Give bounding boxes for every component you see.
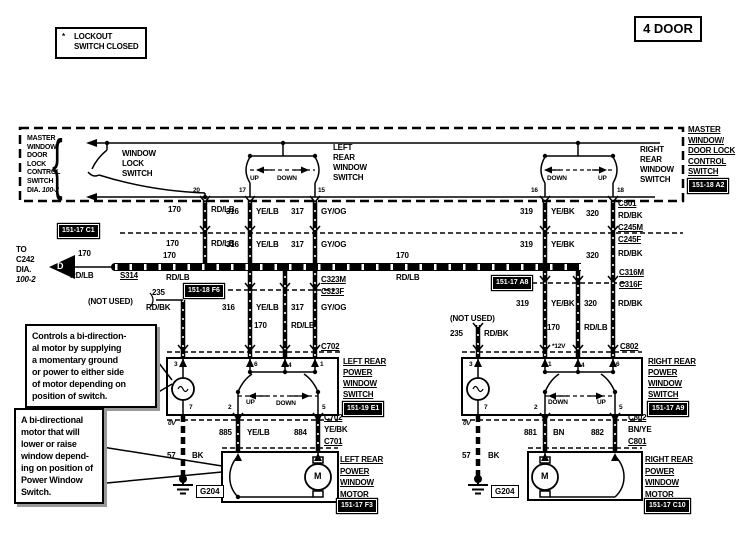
wire-gauge: 316 (226, 207, 239, 216)
ground-label: G204 (491, 485, 519, 498)
down-label: DOWN (276, 400, 296, 407)
label-line: SWITCH (688, 167, 735, 178)
label-line: WINDOW/ (688, 136, 735, 147)
label-line: POWER (648, 367, 696, 378)
label-line: REAR (640, 155, 674, 165)
splice-label: S314 (120, 271, 138, 280)
lockout-note-line1: LOCKOUT (74, 32, 112, 41)
wire-gauge: 319 (520, 240, 533, 249)
wire-color: YE/LB (256, 303, 279, 312)
ground-symbol-right (468, 476, 488, 494)
pin-label: 1 (548, 361, 551, 368)
note-line: position of switch. (32, 390, 150, 402)
grid-ref-badge: 151-17 A8 (492, 276, 532, 290)
wire-color: BN/YE (628, 425, 651, 434)
wire-color: GY/OG (321, 207, 346, 216)
label-line: DIA. (16, 265, 35, 275)
label-line: POWER (645, 466, 693, 478)
label-line: WINDOW (648, 378, 696, 389)
wire-color: YE/BK (551, 207, 574, 216)
voltage-label: *12V (552, 343, 565, 350)
label-line: WINDOW (340, 477, 383, 489)
pin-label: 3 (469, 361, 472, 368)
label-line: SWITCH (648, 389, 696, 400)
label-line: SWITCH (333, 173, 367, 183)
wire-gauge: 235 (450, 329, 463, 338)
label-line: POWER (340, 466, 383, 478)
right-motor-label: RIGHT REAR POWER WINDOW MOTOR (645, 454, 693, 500)
label-line: LEFT REAR (340, 454, 383, 466)
pin-label: 18 (617, 187, 624, 194)
wiring-diagram-page: * LOCKOUT SWITCH CLOSED 4 DOOR MASTER WI… (0, 0, 751, 537)
pin-label: 2 (228, 404, 231, 411)
note-line: of motor depending on (32, 378, 150, 390)
not-used-label: (NOT USED) (450, 314, 495, 323)
connector-label: C316M (619, 268, 644, 277)
wire-color: YE/BK (551, 240, 574, 249)
right-power-switch-label: RIGHT REAR POWER WINDOW SWITCH (648, 356, 696, 400)
connector-label: C702 (321, 342, 339, 351)
wire-color: YE/LB (256, 207, 279, 216)
label-line: TO (16, 245, 35, 255)
pin-label: 15 (318, 187, 325, 194)
connector-label: C801 (628, 437, 646, 446)
down-label: DOWN (277, 175, 297, 182)
note-line: window depend- (21, 450, 97, 462)
wire-gauge: 885 (219, 428, 232, 437)
grid-ref-badge: 151-18 A2 (688, 179, 728, 193)
wire-gauge: 170 (163, 251, 176, 260)
wire-gauge: 170 (78, 249, 91, 258)
label-line: LEFT (333, 143, 367, 153)
connector-label: C323F (321, 287, 344, 296)
label-line: MASTER (688, 125, 735, 136)
connector-label: C701 (324, 437, 342, 446)
grid-ref-badge: 151-17 F3 (337, 499, 377, 513)
ground-label: G204 (196, 485, 224, 498)
pin-label: 5 (322, 404, 325, 411)
wire-gauge: 317 (291, 303, 304, 312)
wire-color: RD/LB (70, 271, 93, 280)
pin-label: 20 (193, 187, 200, 194)
pin-label: 1 (320, 361, 323, 368)
wire-color: RD/LB (584, 323, 607, 332)
label-line: WINDOW (333, 163, 367, 173)
wire-color: RD/BK (618, 211, 642, 220)
label-line: WINDOW (645, 477, 693, 489)
pin-label: 7 (189, 404, 192, 411)
wire-gauge: 170 (166, 239, 179, 248)
note-line: ing on position of (21, 462, 97, 474)
wire-color: BK (192, 451, 203, 460)
wire-gauge: 319 (516, 299, 529, 308)
right-rear-window-switch-label: RIGHT REAR WINDOW SWITCH (640, 145, 674, 185)
right-power-switch-internals (467, 358, 615, 415)
note-line: motor that will (21, 426, 97, 438)
grid-ref-badge: 151-17 C1 (58, 224, 99, 238)
wire-color: RD/BK (146, 303, 170, 312)
wire-gauge: 316 (226, 240, 239, 249)
connector-label: C501 (618, 199, 636, 208)
wire-color: RD/LB (396, 273, 419, 282)
wire-color: RD/BK (618, 299, 642, 308)
grid-ref-badge: 151-19 E1 (343, 402, 383, 416)
ground-symbol-left (173, 476, 193, 494)
label-line: C242 (16, 255, 35, 265)
pin-label: 6 (254, 361, 257, 368)
connector-label: C323M (321, 275, 346, 284)
wire-gauge: 170 (254, 321, 267, 330)
up-label: UP (597, 399, 606, 406)
voltage-label: 0V (168, 420, 176, 427)
motor-m-letter: M (541, 472, 548, 481)
wire-gauge: 57 (462, 451, 471, 460)
label-line: SWITCH (343, 389, 386, 400)
left-rear-window-switch-label: LEFT REAR WINDOW SWITCH (333, 143, 367, 183)
switch-function-note: Controls a bi-direction- al motor by sup… (25, 324, 157, 408)
asterisk: * (62, 32, 65, 41)
wire-gauge: 882 (591, 428, 604, 437)
wire-gauge: 316 (222, 303, 235, 312)
connector-label: C245M (618, 223, 643, 232)
note-line: a momentary ground (32, 354, 150, 366)
label-line: REAR (333, 153, 367, 163)
note-line: Switch. (21, 486, 97, 498)
wire-color: RD/LB (291, 321, 314, 330)
label-line: WINDOW (640, 165, 674, 175)
label-line: SWITCH (122, 169, 156, 179)
brace-glyph: { (52, 130, 63, 197)
wire-color: GY/OG (321, 240, 346, 249)
pin-label: 16 (531, 187, 538, 194)
wire-color: GY/OG (321, 303, 346, 312)
pin-label: 3 (174, 361, 177, 368)
up-label: UP (246, 399, 255, 406)
wire-gauge: 320 (586, 251, 599, 260)
left-power-switch-label: LEFT REAR POWER WINDOW SWITCH (343, 356, 386, 400)
label-line: SWITCH (640, 175, 674, 185)
grid-ref-badge: 151-17 A9 (648, 402, 688, 416)
label-line: RIGHT REAR (648, 356, 696, 367)
label-line: RIGHT REAR (645, 454, 693, 466)
connector-label: C702 (324, 413, 342, 422)
voltage-label: 0V (463, 420, 471, 427)
label-line: DOOR LOCK (688, 146, 735, 157)
wire-gauge: 57 (167, 451, 176, 460)
wire-gauge: 881 (524, 428, 537, 437)
left-power-switch-internals (172, 358, 318, 415)
pin-arrowheads (179, 359, 619, 462)
wire-color: YE/BK (551, 299, 574, 308)
up-label: UP (250, 175, 259, 182)
not-used-label: (NOT USED) (88, 297, 133, 306)
label-line: CONTROL (688, 157, 735, 168)
wire-color: YE/LB (247, 428, 270, 437)
label-line: POWER (343, 367, 386, 378)
up-label: UP (598, 175, 607, 182)
wire-color: RD/LB (166, 273, 189, 282)
wire-gauge: 320 (584, 299, 597, 308)
note-line: Controls a bi-direction- (32, 330, 150, 342)
note-line: A bi-directional (21, 414, 97, 426)
wire-color: YE/LB (256, 240, 279, 249)
label-line: WINDOW (343, 378, 386, 389)
wire-color: BK (488, 451, 499, 460)
note-line: Power Window (21, 474, 97, 486)
wire-color: RD/BK (618, 249, 642, 258)
wire-color: RD/BK (484, 329, 508, 338)
wire-gauge: 170 (168, 205, 181, 214)
door-config-tag: 4 DOOR (634, 16, 702, 42)
motor-m-letter: M (314, 472, 321, 481)
window-lock-switch-label: WINDOW LOCK SWITCH (122, 149, 156, 179)
motor-boxes (222, 452, 642, 502)
connector-label: C245F (618, 235, 641, 244)
pin-label: 6 (616, 361, 619, 368)
wire-color: BN (553, 428, 564, 437)
connector-label: C802 (628, 413, 646, 422)
grid-ref-badge: 151-18 F6 (184, 284, 224, 298)
label-line: WINDOW (122, 149, 156, 159)
label-line: RIGHT (640, 145, 674, 155)
pin-label: 7 (484, 404, 487, 411)
pin-label: 5 (619, 404, 622, 411)
label-line: 100-2 (16, 275, 35, 285)
wire-gauge: 884 (294, 428, 307, 437)
pin-label: 4 (288, 362, 291, 369)
note-line: or power to either side (32, 366, 150, 378)
to-c242-label: TO C242 DIA. 100-2 (16, 245, 35, 285)
label-line: LEFT REAR (343, 356, 386, 367)
label-line: LOCK (122, 159, 156, 169)
wire-gauge: 319 (520, 207, 533, 216)
circuit-d-letter: D (57, 262, 63, 271)
connector-label: C316F (619, 280, 642, 289)
wire-gauge: 320 (586, 209, 599, 218)
pin-label: 2 (534, 404, 537, 411)
wire-gauge: 317 (291, 207, 304, 216)
connector-label: C802 (620, 342, 638, 351)
lockout-note-box: * LOCKOUT SWITCH CLOSED (55, 27, 147, 59)
pin-label: 4 (581, 362, 584, 369)
lockout-note-line2: SWITCH CLOSED (74, 42, 139, 51)
motor-function-note: A bi-directional motor that will lower o… (14, 408, 104, 504)
down-label: DOWN (548, 399, 568, 406)
wire-color: YE/BK (324, 425, 347, 434)
note-line: lower or raise (21, 438, 97, 450)
down-label: DOWN (547, 175, 567, 182)
wire-gauge: 235 (152, 288, 165, 297)
wire-gauge: 317 (291, 240, 304, 249)
note-line: al motor by supplying (32, 342, 150, 354)
grid-ref-badge: 151-17 C10 (645, 499, 690, 513)
pin-label: 17 (239, 187, 246, 194)
master-switch-right-label: MASTER WINDOW/ DOOR LOCK CONTROL SWITCH (688, 125, 735, 178)
wire-gauge: 170 (547, 323, 560, 332)
left-motor-label: LEFT REAR POWER WINDOW MOTOR (340, 454, 383, 500)
rail-arrows (86, 139, 97, 201)
wire-gauge: 170 (396, 251, 409, 260)
